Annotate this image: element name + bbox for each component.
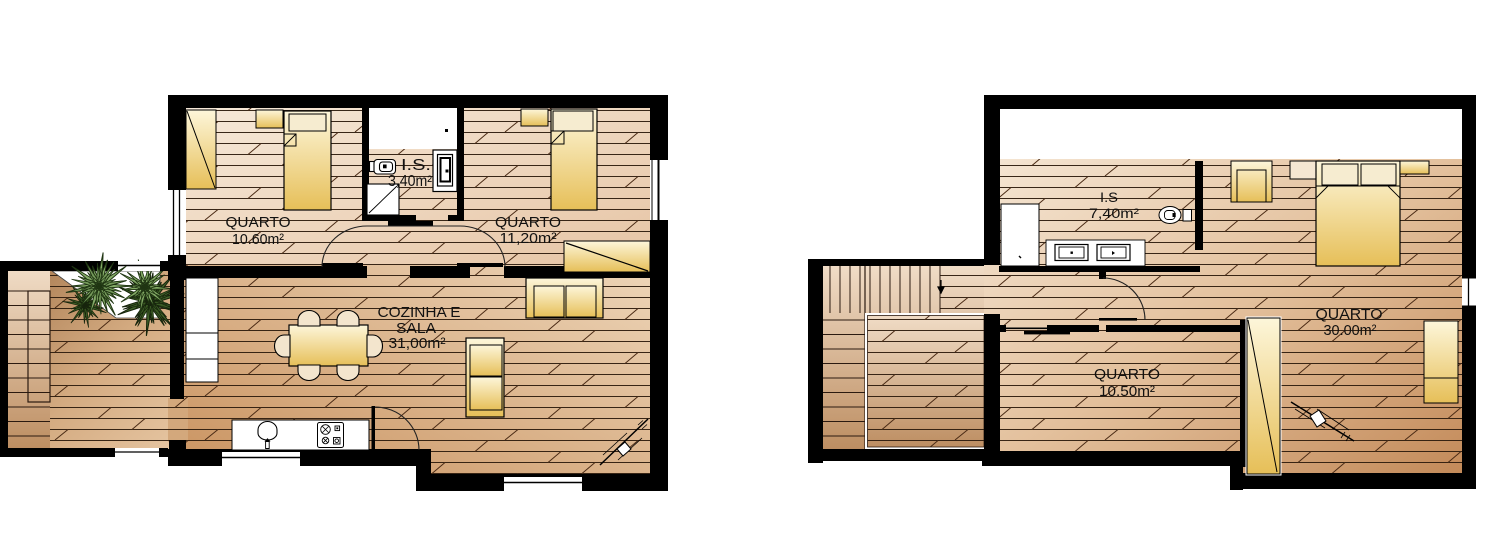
svg-text:QUARTO: QUARTO xyxy=(226,214,291,231)
svg-text:31,00m²: 31,00m² xyxy=(389,335,446,352)
svg-text:QUARTO: QUARTO xyxy=(495,214,561,231)
svg-text:11,20m²: 11,20m² xyxy=(500,230,557,247)
svg-text:3,40m²: 3,40m² xyxy=(388,173,432,190)
svg-text:7,40m²: 7,40m² xyxy=(1089,206,1140,221)
svg-text:QUARTO: QUARTO xyxy=(1316,306,1383,323)
svg-text:I.S: I.S xyxy=(1100,190,1118,205)
svg-text:COZINHA E: COZINHA E xyxy=(378,304,461,321)
svg-text:10.50m²: 10.50m² xyxy=(1099,383,1155,400)
svg-text:QUARTO: QUARTO xyxy=(1094,366,1160,383)
svg-text:30.00m²: 30.00m² xyxy=(1324,322,1377,339)
svg-text:I.S.: I.S. xyxy=(401,157,431,174)
svg-text:10.60m²: 10.60m² xyxy=(232,231,284,248)
